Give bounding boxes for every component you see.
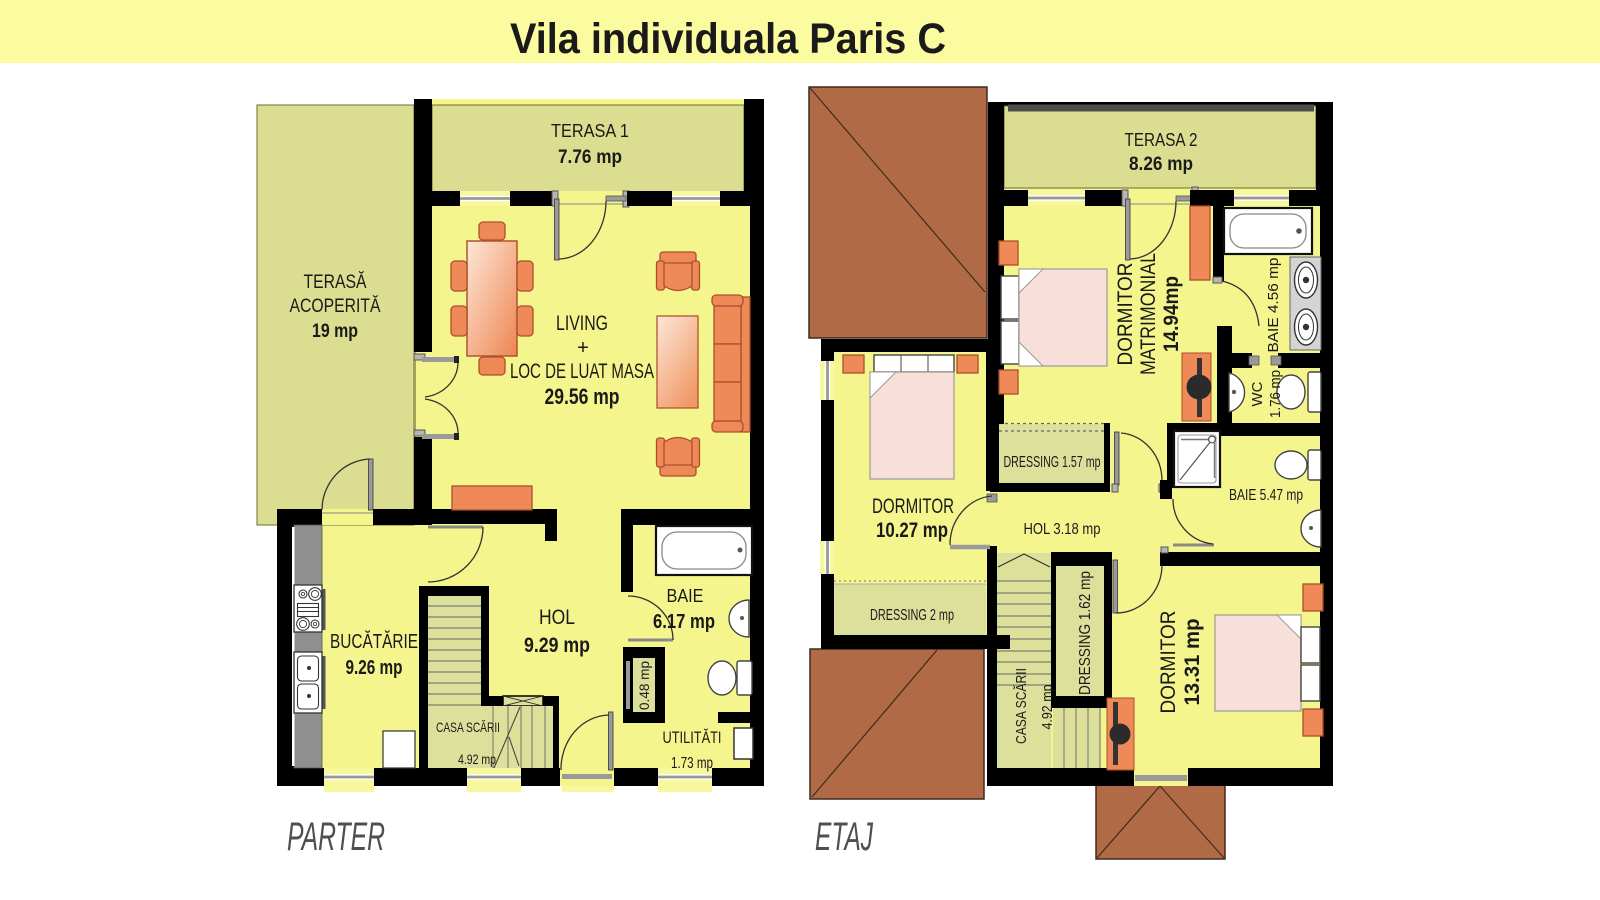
svg-text:HOL: HOL [539, 606, 575, 629]
svg-text:DORMITOR: DORMITOR [872, 495, 954, 518]
svg-text:DORMITOR: DORMITOR [1114, 263, 1137, 366]
svg-text:WC: WC [1249, 381, 1266, 406]
svg-text:19 mp: 19 mp [312, 321, 358, 342]
svg-text:1.76 mp: 1.76 mp [1267, 370, 1284, 418]
svg-text:DRESSING 2 mp: DRESSING 2 mp [870, 607, 954, 624]
svg-text:DORMITOR: DORMITOR [1157, 611, 1180, 714]
svg-text:DRESSING 1.57 mp: DRESSING 1.57 mp [1004, 454, 1101, 471]
svg-text:TERASA 1: TERASA 1 [551, 121, 629, 141]
svg-text:TERASĂ: TERASĂ [304, 272, 367, 293]
svg-text:1.73 mp: 1.73 mp [671, 755, 713, 772]
svg-text:DRESSING 1.62 mp: DRESSING 1.62 mp [1077, 571, 1094, 695]
svg-text:BAIE: BAIE [667, 586, 704, 606]
svg-text:ETAJ: ETAJ [815, 815, 874, 859]
svg-text:14.94mp: 14.94mp [1160, 276, 1183, 352]
svg-text:10.27 mp: 10.27 mp [876, 519, 948, 542]
svg-text:13.31 mp: 13.31 mp [1181, 619, 1204, 706]
svg-text:LIVING: LIVING [556, 312, 608, 335]
svg-text:CASA SCĂRII: CASA SCĂRII [436, 719, 500, 735]
svg-text:+: + [577, 337, 589, 359]
svg-text:9.29 mp: 9.29 mp [524, 634, 590, 657]
svg-text:LOC DE LUAT MASA: LOC DE LUAT MASA [510, 360, 654, 383]
svg-text:8.26 mp: 8.26 mp [1129, 154, 1193, 175]
svg-text:UTILITĂTI: UTILITĂTI [663, 728, 722, 747]
svg-text:HOL 3.18 mp: HOL 3.18 mp [1024, 521, 1101, 538]
svg-text:Vila individuala Paris C: Vila individuala Paris C [510, 15, 946, 63]
svg-text:4.92 mp: 4.92 mp [458, 751, 496, 767]
svg-text:6.17 mp: 6.17 mp [653, 611, 715, 633]
svg-text:ACOPERITĂ: ACOPERITĂ [290, 296, 381, 317]
svg-text:BAIE 4.56 mp: BAIE 4.56 mp [1265, 258, 1282, 353]
svg-text:CASA SCĂRII: CASA SCĂRII [1013, 668, 1030, 744]
svg-text:9.26 mp: 9.26 mp [346, 657, 403, 679]
svg-text:BUCĂTĂRIE: BUCĂTĂRIE [330, 630, 418, 653]
svg-text:MATRIMONIAL: MATRIMONIAL [1137, 253, 1160, 375]
svg-text:29.56 mp: 29.56 mp [545, 384, 620, 409]
svg-text:7.76 mp: 7.76 mp [558, 147, 622, 168]
svg-text:4.92 mp: 4.92 mp [1039, 685, 1056, 730]
svg-text:PARTER: PARTER [287, 815, 385, 859]
svg-text:0.48 mp: 0.48 mp [637, 661, 652, 710]
svg-text:BAIE 5.47 mp: BAIE 5.47 mp [1229, 487, 1303, 504]
svg-text:TERASA 2: TERASA 2 [1125, 130, 1198, 150]
